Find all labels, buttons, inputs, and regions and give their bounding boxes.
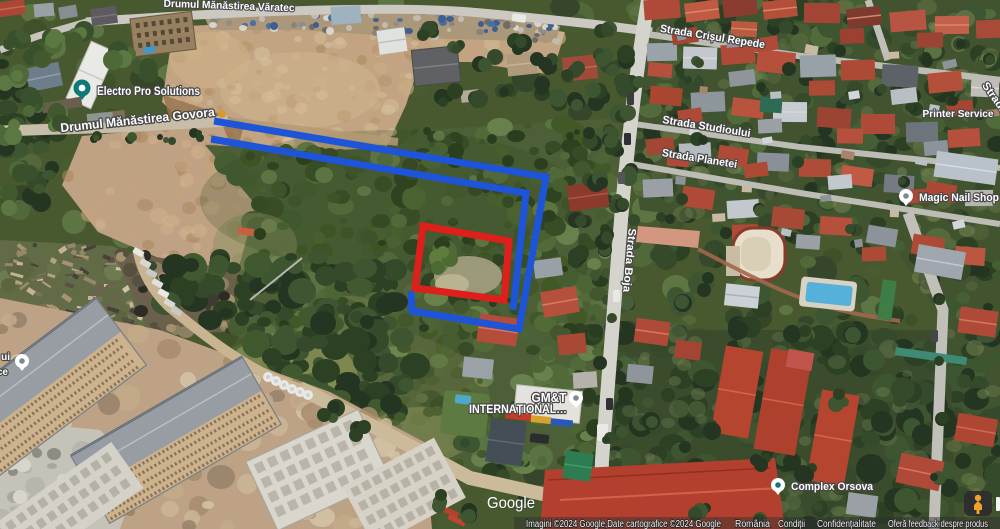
svg-text:ui: ui: [1, 352, 10, 363]
svg-text:Printer Service: Printer Service: [923, 108, 994, 120]
svg-text:ce: ce: [0, 367, 8, 378]
svg-text:Imagini ©2024 Google,Date cart: Imagini ©2024 Google,Date cartografice ©…: [526, 519, 721, 529]
svg-text:Google: Google: [487, 495, 535, 512]
svg-text:INTERNAȚIONAL…: INTERNAȚIONAL…: [469, 402, 567, 416]
svg-text:Electro Pro Solutions: Electro Pro Solutions: [97, 86, 200, 98]
svg-text:Confidențialitate: Confidențialitate: [817, 519, 876, 529]
svg-text:Magic Nail Shop: Magic Nail Shop: [919, 192, 999, 204]
svg-text:Oferă feedback despre produs: Oferă feedback despre produs: [888, 519, 988, 529]
svg-text:Condiții: Condiții: [778, 519, 805, 529]
svg-text:România: România: [735, 519, 770, 529]
svg-text:Complex Orsova: Complex Orsova: [791, 481, 874, 493]
